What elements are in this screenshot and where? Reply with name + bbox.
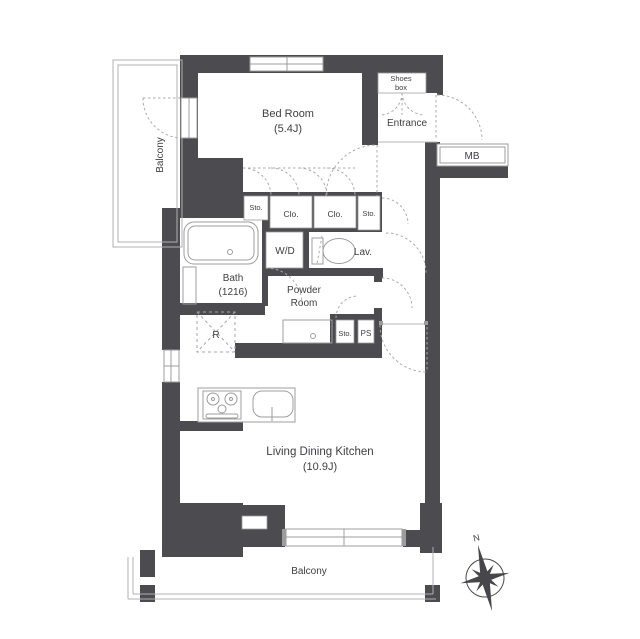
lav-label: Lav. <box>354 247 372 258</box>
balcony-door-bedroom <box>181 98 197 138</box>
shoes-box-label-line2: box <box>395 83 407 92</box>
entrance-label: Entrance <box>387 118 427 129</box>
bedroom-label: Bed Room <box>262 108 314 120</box>
kitchen-side-window <box>164 350 179 382</box>
compass-rose: N <box>451 528 517 617</box>
ps-label: PS <box>361 329 372 338</box>
floorplan-page: Balcony Bed Room (5.4J) Shoes box Entran… <box>0 0 640 639</box>
floorplan-canvas: Balcony Bed Room (5.4J) Shoes box Entran… <box>0 0 640 639</box>
bedroom-size-label: (5.4J) <box>274 123 302 135</box>
mb-label: MB <box>465 151 480 162</box>
ldk-doorway <box>379 321 428 325</box>
powder-room-label-line1: Powder <box>287 285 322 296</box>
shoes-box-label-line1: Shoes <box>390 74 412 83</box>
closet-door-swings <box>243 168 355 196</box>
ldk-balcony-window <box>282 529 406 546</box>
balcony-door-swing <box>143 98 180 138</box>
balcony-left-label: Balcony <box>155 137 166 173</box>
ldk-size-label: (10.9J) <box>303 461 337 473</box>
bedroom-door-swing <box>326 145 377 196</box>
wd-label: W/D <box>275 246 294 257</box>
bath-label: Bath <box>223 273 244 284</box>
closet-1-label: Clo. <box>283 209 298 219</box>
powder-room-label-line2: Room <box>291 298 318 309</box>
ldk-label: Living Dining Kitchen <box>266 446 373 458</box>
ldk-door-swing <box>380 325 427 372</box>
closet-2-label: Clo. <box>327 209 342 219</box>
compass-north-label: N <box>472 532 480 543</box>
bedroom-window <box>250 57 323 71</box>
hallway-door-swings <box>382 198 426 308</box>
kitchen-counter <box>198 388 295 422</box>
entrance-door-swing <box>436 95 482 140</box>
storage-right-label: Sto. <box>362 209 375 218</box>
balcony-bottom-label: Balcony <box>291 566 327 577</box>
wall-notch <box>242 516 267 529</box>
refrigerator-label: R <box>212 330 219 341</box>
bath-size-label: (1216) <box>219 287 248 298</box>
storage-left-label: Sto. <box>249 203 262 212</box>
storage-powder-label: Sto. <box>338 329 351 338</box>
